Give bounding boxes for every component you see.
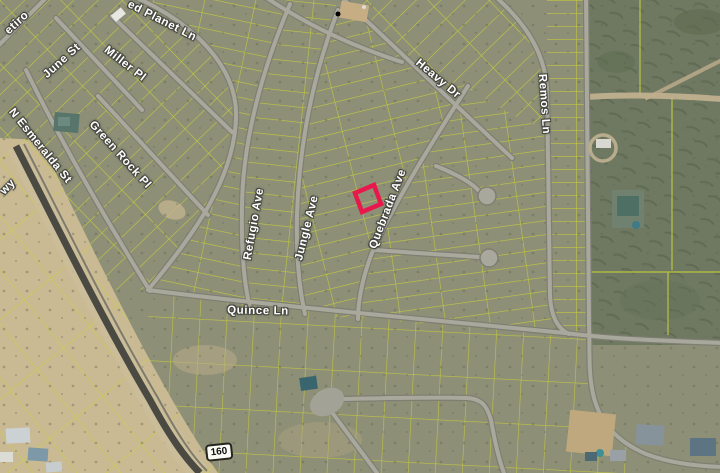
map-viewport[interactable]: etiro ed Planet Ln June St Miller Pl N E… xyxy=(0,0,720,473)
route-160-shield: 160 xyxy=(205,442,233,462)
satellite-imagery xyxy=(0,0,720,473)
